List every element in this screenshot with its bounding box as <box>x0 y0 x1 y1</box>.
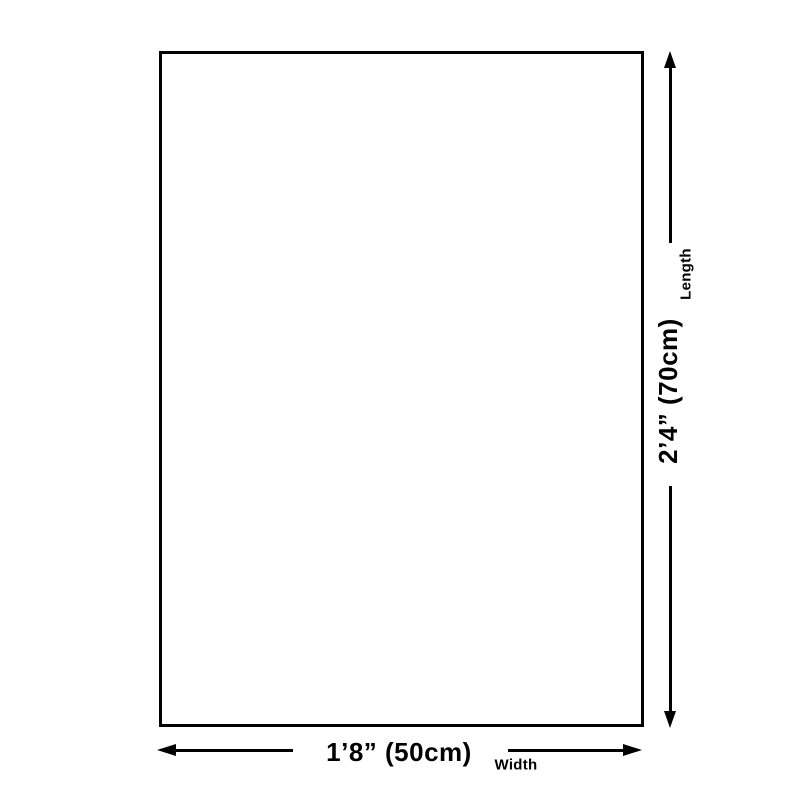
length-label: Length <box>679 248 694 300</box>
length-arrow-line-top <box>669 66 672 243</box>
length-value: 2’4” (70cm) <box>655 318 681 464</box>
length-arrow-line-bottom <box>669 486 672 712</box>
width-arrow-line-left <box>175 749 293 752</box>
width-arrow-line-right <box>508 749 624 752</box>
width-value: 1’8” (50cm) <box>326 739 472 765</box>
arrow-right-icon <box>623 744 642 756</box>
arrow-down-icon <box>664 711 676 728</box>
width-label: Width <box>494 758 537 773</box>
arrow-left-icon <box>157 744 176 756</box>
dimension-diagram: Length 2’4” (70cm) 1’8” (50cm) Width <box>0 0 800 800</box>
product-outline <box>159 51 644 727</box>
